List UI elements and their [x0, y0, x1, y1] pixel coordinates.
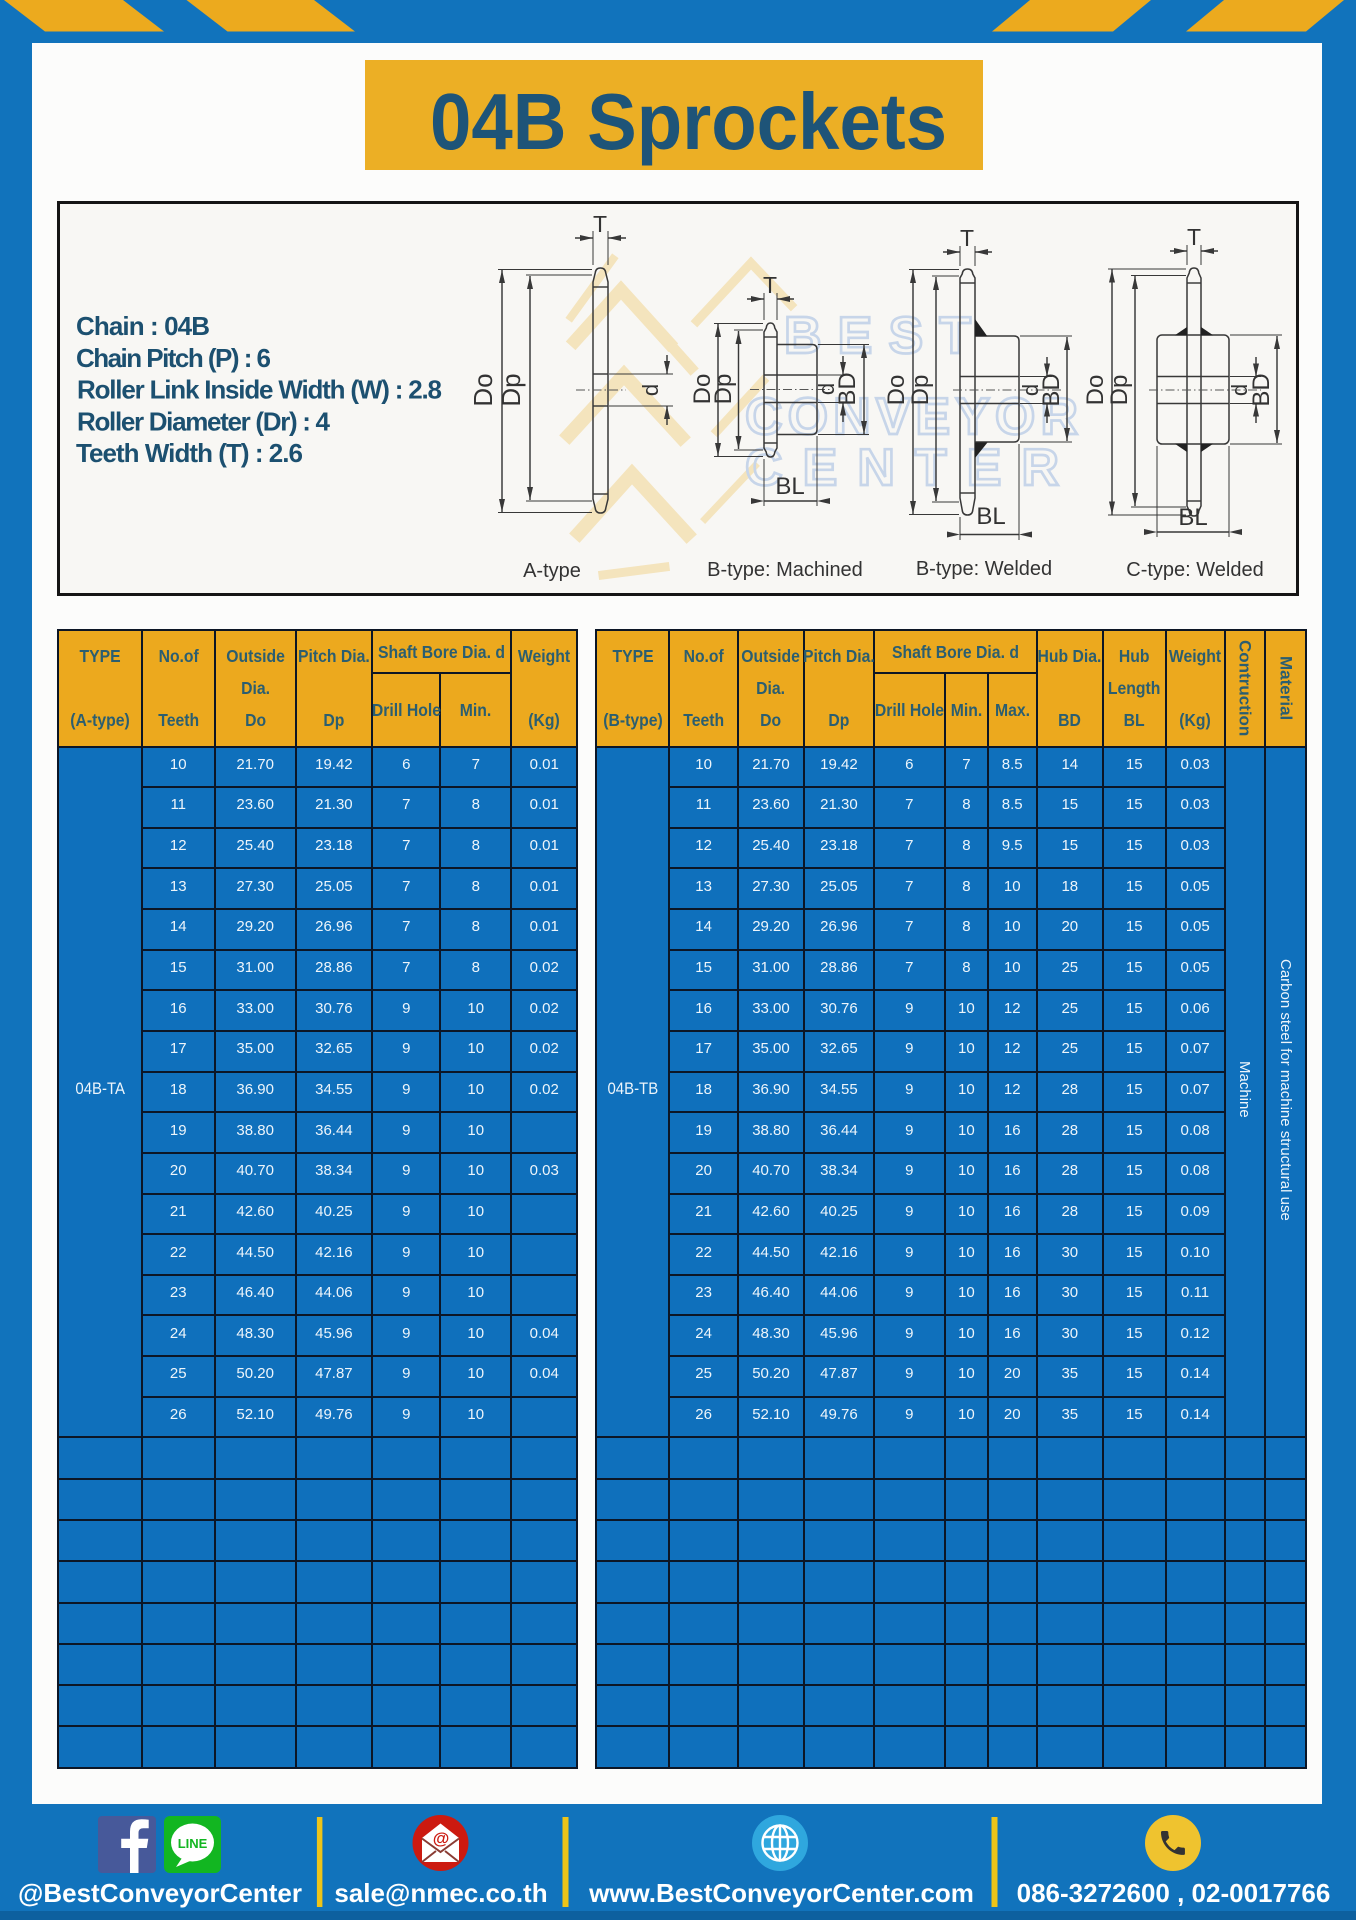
svg-text:LINE: LINE — [178, 1836, 208, 1851]
svg-text:Dp: Dp — [496, 373, 526, 406]
svg-text:Roller Diameter (Dr) : 4: Roller Diameter (Dr) : 4 — [77, 406, 331, 436]
svg-text:C-type: Welded: C-type: Welded — [1126, 559, 1263, 581]
svg-text:BEST: BEST — [784, 307, 979, 365]
svg-text:sale@nmec.co.th: sale@nmec.co.th — [334, 1878, 547, 1908]
svg-text:www.BestConveyorCenter.com: www.BestConveyorCenter.com — [588, 1878, 974, 1908]
svg-text:Chain Pitch (P) : 6: Chain Pitch (P) : 6 — [76, 343, 271, 373]
svg-text:Teeth Width (T) : 2.6: Teeth Width (T) : 2.6 — [76, 438, 303, 468]
svg-text:B-type: Machined: B-type: Machined — [707, 559, 863, 581]
svg-text:Dp: Dp — [710, 374, 737, 405]
svg-text:@: @ — [433, 1829, 450, 1848]
svg-text:Do: Do — [883, 375, 910, 406]
svg-text:T: T — [593, 211, 607, 237]
svg-text:@BestConveyorCenter: @BestConveyorCenter — [18, 1878, 302, 1908]
svg-text:BD: BD — [834, 372, 861, 405]
svg-text:Do: Do — [1082, 375, 1109, 406]
svg-text:T: T — [960, 225, 974, 251]
svg-text:BL: BL — [775, 473, 804, 500]
svg-text:Dp: Dp — [907, 375, 934, 406]
svg-text:T: T — [763, 272, 777, 298]
svg-text:BL: BL — [976, 503, 1005, 530]
svg-text:B-type: Welded: B-type: Welded — [916, 558, 1052, 580]
svg-text:T: T — [1187, 224, 1201, 250]
svg-text:A-type: A-type — [523, 560, 581, 582]
svg-text:BL: BL — [1178, 504, 1207, 531]
svg-text:Roller Link Inside Width (W) :: Roller Link Inside Width (W) : 2.8 — [77, 375, 442, 405]
svg-text:04B Sprockets: 04B Sprockets — [430, 77, 947, 166]
svg-text:BD: BD — [1248, 373, 1275, 406]
svg-text:Dp: Dp — [1106, 375, 1133, 406]
svg-text:086-3272600 , 02-0017766: 086-3272600 , 02-0017766 — [1017, 1878, 1331, 1908]
svg-text:BD: BD — [1038, 373, 1065, 406]
svg-text:Chain : 04B: Chain : 04B — [76, 311, 210, 341]
svg-text:d: d — [638, 384, 663, 396]
